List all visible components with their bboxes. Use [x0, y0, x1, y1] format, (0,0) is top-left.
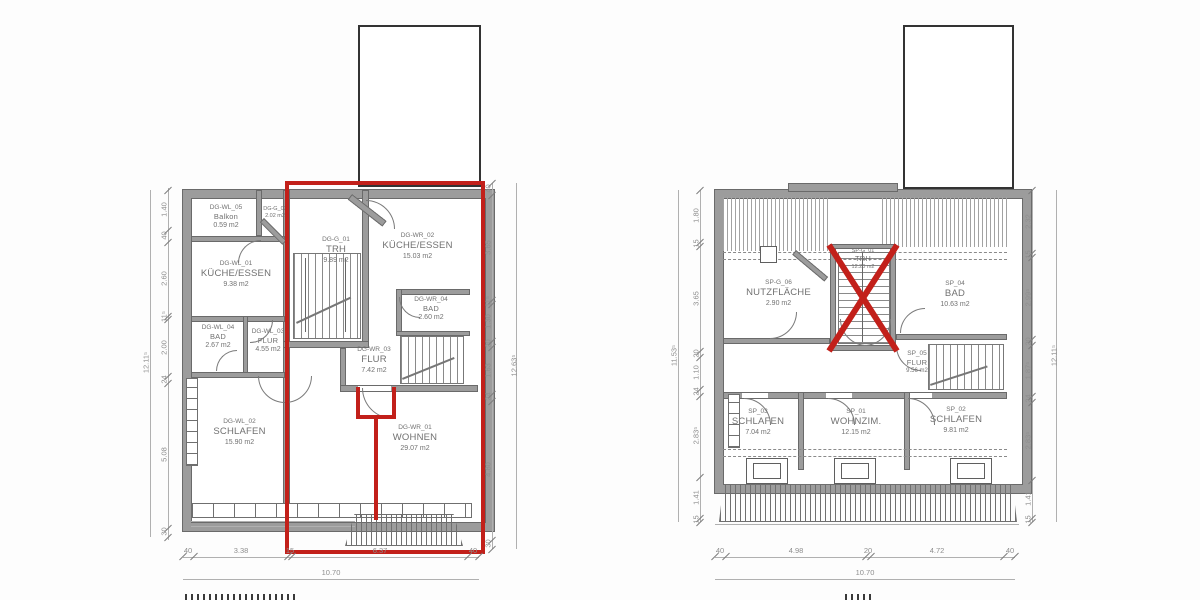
sheet-edge-mark — [845, 594, 873, 600]
dim-label: 40 — [988, 546, 1032, 555]
dim-label: 12.11⁵ — [1050, 324, 1059, 388]
dim-label: 2.83⁵ — [692, 404, 701, 468]
dim-label: 15 — [1024, 488, 1033, 552]
right-plan-dimensions: 1.80 15 3.65 20 1.10 24 2.83⁵ 1.41 15 11… — [0, 0, 1200, 600]
dim-label: 40 — [698, 546, 742, 555]
dim-label: 15 — [692, 488, 701, 552]
sheet-edge-mark — [185, 594, 297, 600]
dim-label: 11.53⁵ — [670, 324, 679, 388]
floorplan-sheet: DG-WL_05 Balkon 0.59 m2 DG-G_02 2.02 m2 … — [0, 0, 1200, 600]
dim-label: 2.83⁵ — [1024, 409, 1033, 473]
dim-label: 4.72 — [915, 546, 959, 555]
dim-label: 10.70 — [843, 568, 887, 577]
dim-line — [715, 579, 1015, 580]
dim-label: 4.98 — [774, 546, 818, 555]
dim-label: 20 — [846, 546, 890, 555]
